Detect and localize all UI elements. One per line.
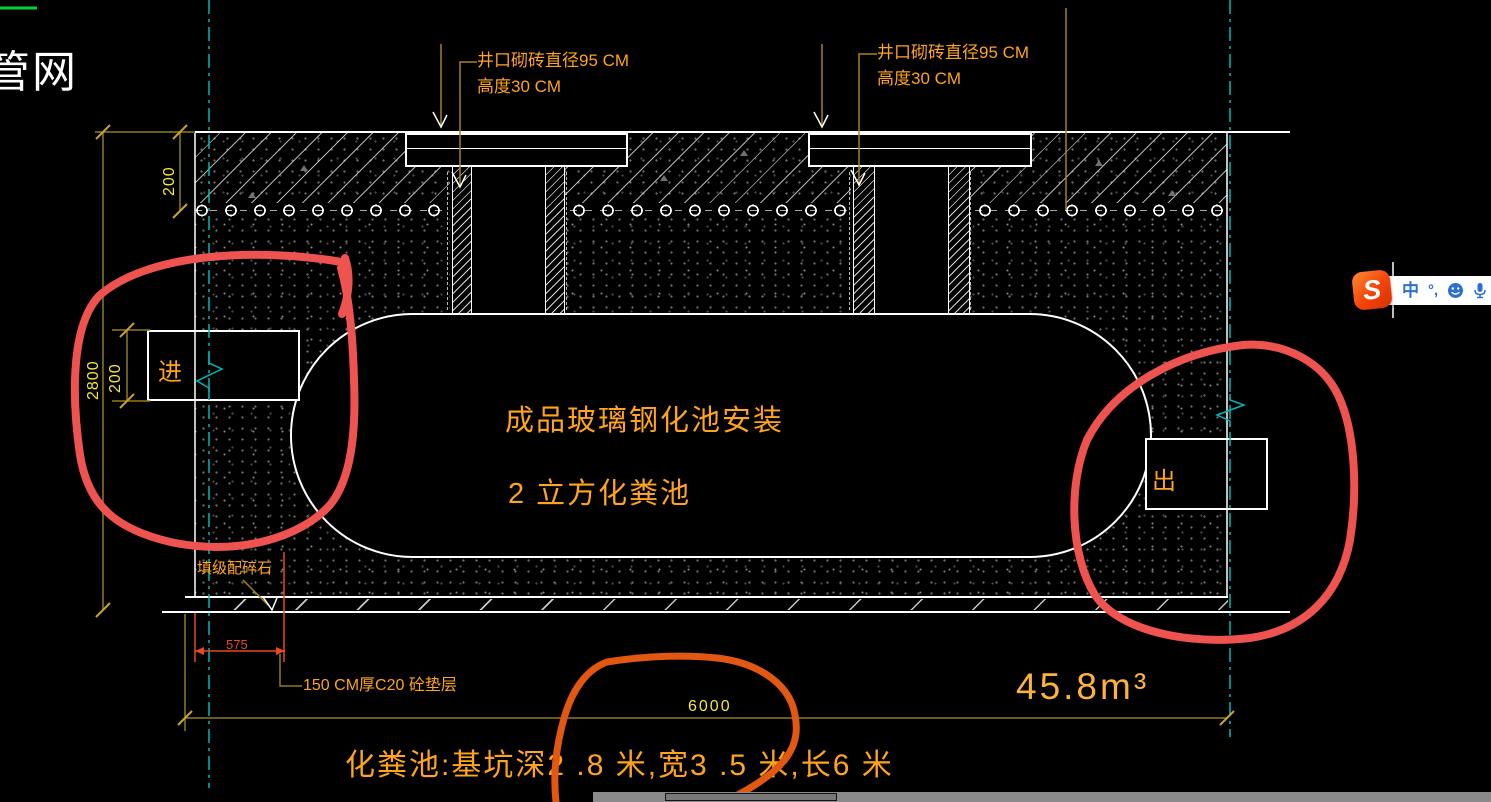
emoji-button[interactable] [1447, 282, 1464, 299]
chinese-mode-button[interactable]: 中 [1402, 282, 1419, 299]
red-circle-right [1074, 345, 1354, 640]
emoji-icon [1447, 282, 1464, 299]
microphone-button[interactable] [1473, 282, 1487, 299]
sogou-logo[interactable]: S [1351, 269, 1393, 311]
microphone-icon [1473, 282, 1487, 299]
bottom-window-edge [593, 792, 1491, 802]
punctuation-button[interactable]: °, [1428, 283, 1438, 298]
cad-canvas: 管网 井口砌砖直径95 CM 高度30 CM 井口砌砖直径95 CM 高度30 … [0, 0, 1491, 802]
window-resize-handle [665, 793, 837, 801]
freehand-annotations [0, 0, 1491, 802]
red-circle-left [75, 255, 355, 547]
orange-circle-bottom [555, 656, 796, 802]
